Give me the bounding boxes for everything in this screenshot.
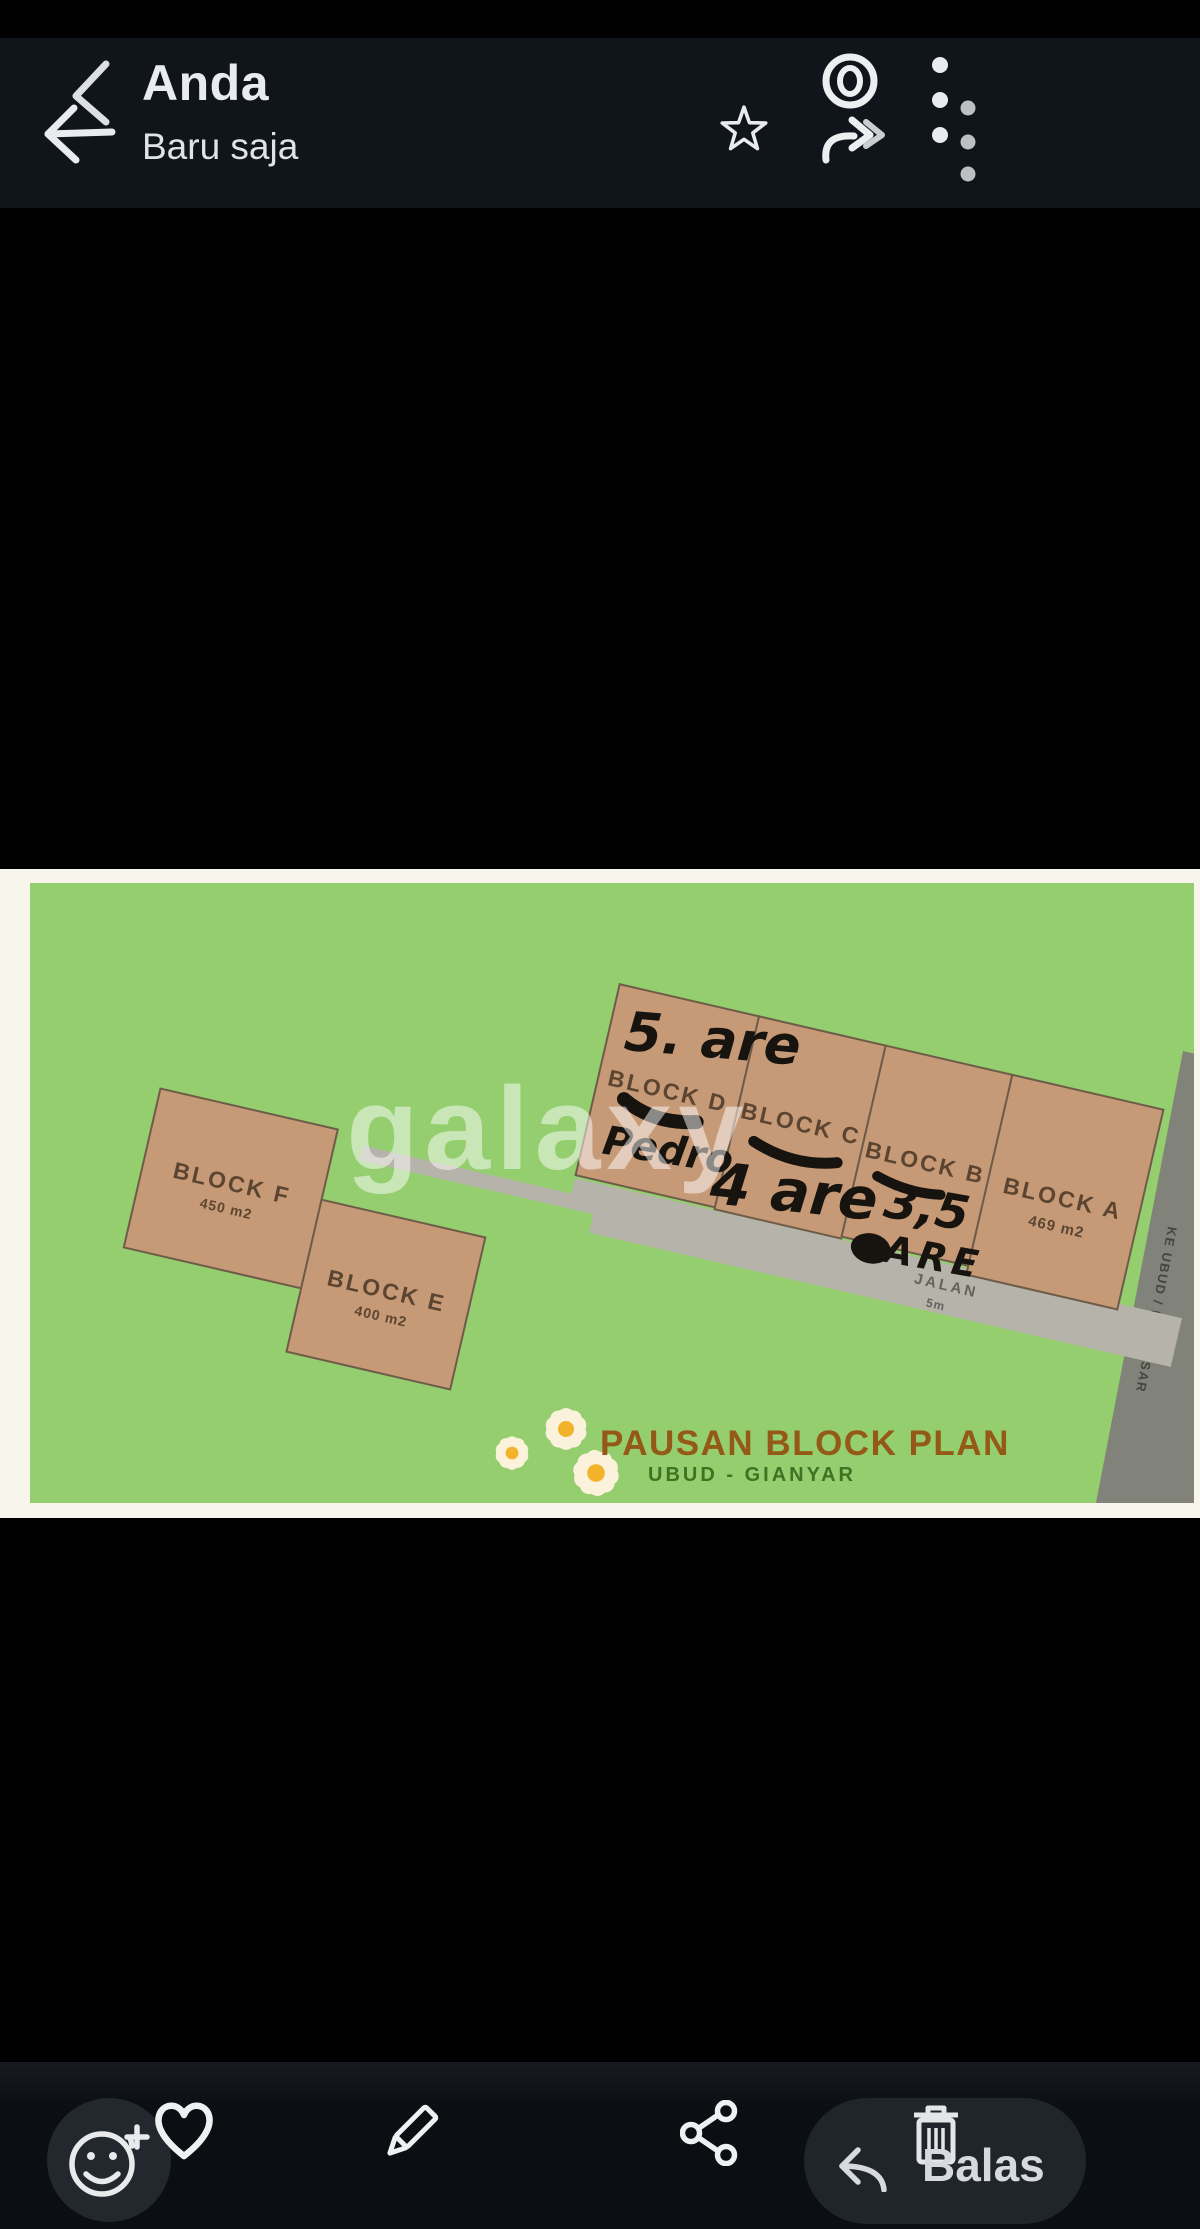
timestamp-subtitle: Baru saja bbox=[142, 126, 298, 168]
share-button[interactable] bbox=[680, 2100, 740, 2166]
view-once-forward-button[interactable] bbox=[810, 48, 894, 170]
reply-pill-button[interactable]: Balas bbox=[804, 2098, 1086, 2224]
block-plan-drawing: KE UBUD / DENPASAR bbox=[0, 869, 1200, 1518]
pencil-icon bbox=[374, 2098, 444, 2170]
app-bar: Anda Baru saja bbox=[0, 38, 1200, 208]
plan-title: PAUSAN BLOCK PLAN bbox=[600, 1424, 1010, 1463]
bottom-action-bar: Balas bbox=[0, 2062, 1200, 2229]
page-title: Anda bbox=[142, 54, 298, 112]
conversation-titles: Anda Baru saja bbox=[142, 54, 298, 168]
share-icon bbox=[680, 2100, 740, 2166]
media-viewer-screen: Anda Baru saja bbox=[0, 0, 1200, 2229]
back-button[interactable] bbox=[36, 50, 120, 168]
heart-button[interactable] bbox=[150, 2098, 218, 2164]
star-icon bbox=[720, 104, 768, 152]
overflow-menu-button[interactable] bbox=[926, 52, 986, 182]
heart-icon bbox=[150, 2098, 218, 2164]
reply-label: Balas bbox=[922, 2138, 1045, 2192]
overflow-menu-icon bbox=[926, 52, 986, 182]
pencil-button[interactable] bbox=[374, 2098, 444, 2170]
watermark: galaxy bbox=[346, 1063, 749, 1195]
view-once-eye-icon bbox=[810, 48, 894, 170]
reply-arrow-icon bbox=[834, 2144, 894, 2192]
photo-block-plan[interactable]: KE UBUD / DENPASAR bbox=[0, 869, 1200, 1518]
star-button[interactable] bbox=[720, 104, 768, 152]
plan-subtitle: UBUD - GIANYAR bbox=[648, 1464, 856, 1486]
back-arrow-icon bbox=[36, 50, 120, 168]
